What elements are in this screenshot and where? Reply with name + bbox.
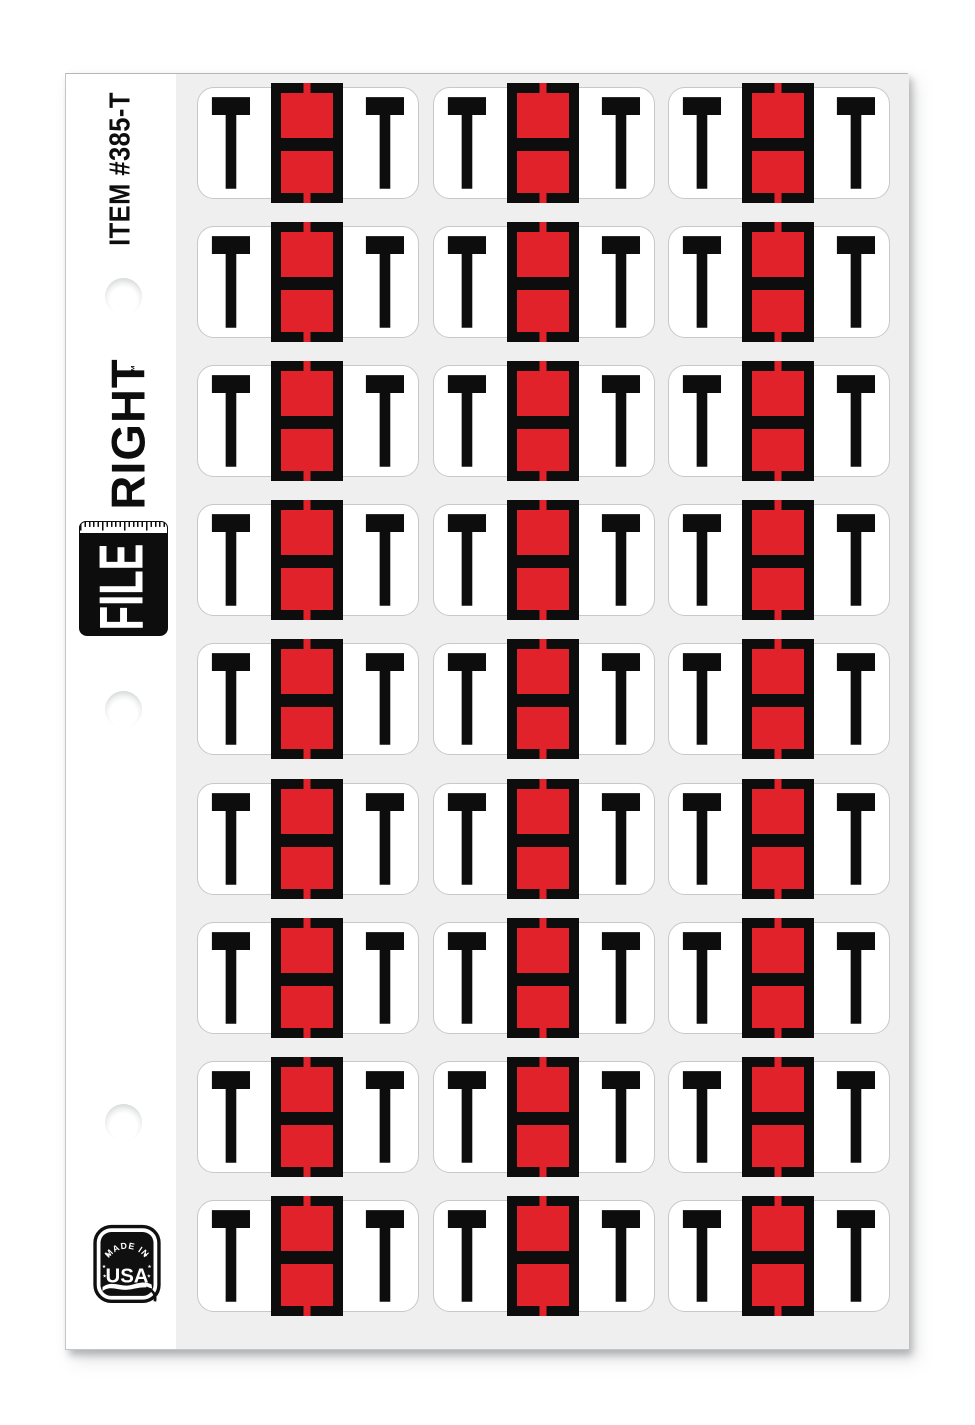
fold-notch-bottom: [304, 748, 311, 759]
label-sticker: TT: [197, 226, 419, 338]
color-block-top: [517, 1206, 569, 1251]
label-sticker: TT: [668, 1061, 890, 1173]
label-sticker: TT: [668, 922, 890, 1034]
color-block-bottom: [281, 986, 333, 1028]
label-letter-right: T: [601, 1047, 640, 1194]
label-letter-right: T: [601, 351, 640, 498]
fold-notch-bottom: [304, 1166, 311, 1177]
fold-notch-top: [539, 83, 546, 94]
fold-notch-top: [775, 779, 782, 790]
label-letter-left: T: [683, 351, 722, 498]
label-letter-left: T: [447, 1047, 486, 1194]
label-letter-right: T: [366, 768, 405, 915]
label-sticker: TT: [668, 87, 890, 199]
label-letter-right: T: [601, 768, 640, 915]
fold-notch-bottom: [539, 331, 546, 342]
fold-notch-bottom: [304, 1305, 311, 1316]
item-number-text: ITEM #385-T: [105, 92, 138, 246]
label-letter-left: T: [683, 73, 722, 220]
label-letter-right: T: [601, 629, 640, 776]
color-block-bottom: [517, 707, 569, 749]
label-letter-right: T: [366, 490, 405, 637]
color-block-top: [517, 1067, 569, 1112]
label-artwork: TT: [433, 365, 655, 477]
label-letter-left: T: [447, 768, 486, 915]
label-sticker: TT: [433, 226, 655, 338]
label-artwork: TT: [433, 504, 655, 616]
label-letter-right: T: [837, 1047, 876, 1194]
fold-notch-bottom: [304, 470, 311, 481]
product-image: { "sheet": { "item_number": "ITEM #385-T…: [0, 0, 975, 1425]
color-block-bottom: [752, 847, 804, 889]
color-block-top: [517, 93, 569, 138]
label-sticker: TT: [433, 87, 655, 199]
color-block-bottom: [517, 568, 569, 610]
fold-notch-bottom: [304, 1027, 311, 1038]
fold-notch-top: [775, 361, 782, 372]
fold-notch-bottom: [775, 1166, 782, 1177]
fold-notch-bottom: [539, 1166, 546, 1177]
color-block-top: [752, 232, 804, 277]
color-block-top: [281, 371, 333, 416]
label-letter-right: T: [601, 212, 640, 359]
fold-notch-top: [539, 918, 546, 929]
fold-notch-top: [304, 83, 311, 94]
label-letter-left: T: [683, 490, 722, 637]
label-letter-left: T: [447, 73, 486, 220]
label-artwork: TT: [668, 643, 890, 755]
label-sticker: TT: [197, 504, 419, 616]
fold-notch-top: [304, 918, 311, 929]
color-block-bottom: [281, 707, 333, 749]
label-sticker: TT: [433, 1200, 655, 1312]
label-letter-right: T: [366, 351, 405, 498]
color-block-bottom: [281, 568, 333, 610]
color-block-bottom: [281, 290, 333, 332]
label-sticker: TT: [433, 365, 655, 477]
label-sticker: TT: [668, 783, 890, 895]
color-block-top: [752, 1067, 804, 1112]
label-sticker: TT: [197, 365, 419, 477]
color-block-top: [281, 928, 333, 973]
label-sticker: TT: [197, 643, 419, 755]
color-block-top: [281, 789, 333, 834]
label-artwork: TT: [197, 504, 419, 616]
label-artwork: TT: [197, 226, 419, 338]
fold-notch-bottom: [775, 1027, 782, 1038]
label-letter-right: T: [366, 212, 405, 359]
color-block-bottom: [752, 290, 804, 332]
label-letter-left: T: [212, 629, 251, 776]
label-letter-left: T: [212, 1047, 251, 1194]
fold-notch-top: [304, 222, 311, 233]
label-sticker: TT: [197, 1061, 419, 1173]
label-letter-left: T: [447, 490, 486, 637]
color-block-top: [752, 510, 804, 555]
label-sticker: TT: [433, 1061, 655, 1173]
fold-notch-top: [775, 500, 782, 511]
color-block-top: [752, 649, 804, 694]
color-block-bottom: [517, 847, 569, 889]
fold-notch-top: [539, 500, 546, 511]
label-artwork: TT: [433, 643, 655, 755]
label-sticker: TT: [668, 1200, 890, 1312]
label-letter-left: T: [212, 351, 251, 498]
color-block-top: [281, 232, 333, 277]
fold-notch-top: [775, 1057, 782, 1068]
fold-notch-bottom: [775, 888, 782, 899]
color-block-top: [517, 510, 569, 555]
label-letter-right: T: [366, 1047, 405, 1194]
label-artwork: TT: [197, 365, 419, 477]
fold-notch-bottom: [539, 192, 546, 203]
label-letter-right: T: [366, 908, 405, 1055]
label-artwork: TT: [197, 922, 419, 1034]
fold-notch-top: [304, 500, 311, 511]
ruler-icon: [79, 521, 168, 534]
color-block-bottom: [517, 429, 569, 471]
label-letter-right: T: [366, 73, 405, 220]
fold-notch-top: [775, 1196, 782, 1207]
fold-notch-top: [539, 639, 546, 650]
color-block-top: [281, 649, 333, 694]
fold-notch-bottom: [539, 470, 546, 481]
label-artwork: TT: [433, 226, 655, 338]
label-letter-left: T: [447, 1186, 486, 1333]
label-letter-left: T: [683, 1047, 722, 1194]
fold-notch-top: [304, 1057, 311, 1068]
label-artwork: TT: [433, 1200, 655, 1312]
fold-notch-bottom: [775, 748, 782, 759]
trademark-symbol: ™: [130, 365, 142, 376]
label-artwork: TT: [197, 783, 419, 895]
label-letter-right: T: [601, 490, 640, 637]
fold-notch-top: [539, 779, 546, 790]
label-artwork: TT: [197, 1200, 419, 1312]
label-letter-left: T: [683, 1186, 722, 1333]
label-letter-right: T: [837, 1186, 876, 1333]
badge-star: ★: [106, 1252, 111, 1258]
labels-grid: TTTTTTTTTTTTTTTTTTTTTTTTTTTTTTTTTTTTTTTT…: [176, 74, 909, 1349]
label-letter-right: T: [837, 73, 876, 220]
color-block-bottom: [517, 151, 569, 193]
label-artwork: TT: [433, 1061, 655, 1173]
color-block-bottom: [517, 1125, 569, 1167]
fold-notch-top: [775, 222, 782, 233]
fold-notch-top: [539, 1196, 546, 1207]
color-block-bottom: [517, 986, 569, 1028]
label-letter-right: T: [837, 768, 876, 915]
color-block-bottom: [752, 986, 804, 1028]
fold-notch-top: [304, 361, 311, 372]
label-sticker: TT: [668, 226, 890, 338]
label-sticker: TT: [668, 643, 890, 755]
label-sticker: TT: [433, 643, 655, 755]
color-block-top: [752, 371, 804, 416]
color-block-top: [517, 232, 569, 277]
label-sticker: TT: [197, 1200, 419, 1312]
color-block-bottom: [517, 1264, 569, 1306]
fold-notch-bottom: [304, 888, 311, 899]
label-sticker: TT: [433, 922, 655, 1034]
fold-notch-top: [775, 83, 782, 94]
label-artwork: TT: [668, 1200, 890, 1312]
label-artwork: TT: [433, 783, 655, 895]
label-sticker: TT: [668, 504, 890, 616]
fold-notch-bottom: [775, 192, 782, 203]
fold-notch-bottom: [775, 470, 782, 481]
brand-right-text: RIGHT: [101, 358, 156, 509]
color-block-bottom: [281, 429, 333, 471]
label-letter-left: T: [212, 768, 251, 915]
color-block-top: [752, 789, 804, 834]
color-block-top: [281, 510, 333, 555]
color-block-top: [517, 928, 569, 973]
label-letter-left: T: [212, 212, 251, 359]
color-block-top: [752, 928, 804, 973]
punch-hole-top: [105, 278, 142, 315]
label-artwork: TT: [668, 922, 890, 1034]
brand-file-text: FILE: [88, 544, 158, 631]
fold-notch-bottom: [539, 888, 546, 899]
label-artwork: TT: [668, 1061, 890, 1173]
fold-notch-bottom: [775, 331, 782, 342]
color-block-bottom: [752, 1125, 804, 1167]
color-block-top: [281, 93, 333, 138]
label-letter-right: T: [837, 908, 876, 1055]
color-block-bottom: [281, 1125, 333, 1167]
color-block-bottom: [752, 151, 804, 193]
label-sticker: TT: [197, 87, 419, 199]
label-sticker: TT: [197, 783, 419, 895]
label-letter-right: T: [837, 212, 876, 359]
label-letter-left: T: [447, 908, 486, 1055]
label-letter-left: T: [212, 1186, 251, 1333]
binding-strip: ITEM #385-T RIGHT ™ FILE MADE IN ★ ★ ★ ★…: [66, 74, 176, 1349]
label-letter-right: T: [837, 490, 876, 637]
label-artwork: TT: [668, 365, 890, 477]
color-block-bottom: [517, 290, 569, 332]
color-block-top: [752, 1206, 804, 1251]
label-letter-left: T: [447, 629, 486, 776]
fold-notch-bottom: [539, 1027, 546, 1038]
label-sticker: TT: [433, 504, 655, 616]
label-letter-right: T: [601, 73, 640, 220]
label-letter-left: T: [447, 351, 486, 498]
label-artwork: TT: [433, 87, 655, 199]
fold-notch-bottom: [539, 748, 546, 759]
label-sheet: ITEM #385-T RIGHT ™ FILE MADE IN ★ ★ ★ ★…: [65, 73, 908, 1350]
label-letter-right: T: [837, 351, 876, 498]
fold-notch-bottom: [775, 609, 782, 620]
color-block-top: [281, 1067, 333, 1112]
color-block-top: [752, 93, 804, 138]
fold-notch-top: [775, 918, 782, 929]
fold-notch-bottom: [539, 1305, 546, 1316]
color-block-bottom: [752, 429, 804, 471]
label-artwork: TT: [668, 504, 890, 616]
color-block-bottom: [281, 151, 333, 193]
label-letter-left: T: [212, 490, 251, 637]
label-artwork: TT: [668, 87, 890, 199]
brand-file-box: FILE: [79, 521, 168, 636]
color-block-bottom: [281, 1264, 333, 1306]
label-letter-left: T: [683, 212, 722, 359]
fold-notch-bottom: [775, 1305, 782, 1316]
fold-notch-bottom: [304, 192, 311, 203]
label-letter-left: T: [683, 629, 722, 776]
color-block-top: [281, 1206, 333, 1251]
fold-notch-top: [539, 361, 546, 372]
punch-hole-middle: [105, 691, 142, 728]
color-block-top: [517, 789, 569, 834]
fold-notch-top: [304, 639, 311, 650]
fold-notch-top: [775, 639, 782, 650]
fold-notch-bottom: [304, 331, 311, 342]
label-artwork: TT: [668, 783, 890, 895]
color-block-bottom: [752, 1264, 804, 1306]
label-sticker: TT: [433, 783, 655, 895]
label-artwork: TT: [197, 643, 419, 755]
color-block-bottom: [752, 707, 804, 749]
color-block-bottom: [752, 568, 804, 610]
fold-notch-bottom: [304, 609, 311, 620]
label-letter-right: T: [837, 629, 876, 776]
label-letter-left: T: [683, 768, 722, 915]
label-artwork: TT: [433, 922, 655, 1034]
fold-notch-bottom: [539, 609, 546, 620]
badge-star: ★: [143, 1252, 148, 1258]
color-block-top: [517, 649, 569, 694]
label-letter-left: T: [447, 212, 486, 359]
label-letter-right: T: [601, 908, 640, 1055]
fold-notch-top: [304, 779, 311, 790]
fold-notch-top: [304, 1196, 311, 1207]
color-block-top: [517, 371, 569, 416]
punch-hole-bottom: [105, 1104, 142, 1141]
color-block-bottom: [281, 847, 333, 889]
label-letter-left: T: [212, 908, 251, 1055]
label-letter-left: T: [212, 73, 251, 220]
label-letter-right: T: [601, 1186, 640, 1333]
label-artwork: TT: [197, 1061, 419, 1173]
label-letter-right: T: [366, 629, 405, 776]
label-letter-left: T: [683, 908, 722, 1055]
label-artwork: TT: [197, 87, 419, 199]
label-sticker: TT: [668, 365, 890, 477]
made-in-usa-badge: MADE IN ★ ★ ★ ★ ★ ★ USA: [93, 1224, 161, 1308]
label-artwork: TT: [668, 226, 890, 338]
fold-notch-top: [539, 222, 546, 233]
fold-notch-top: [539, 1057, 546, 1068]
label-letter-right: T: [366, 1186, 405, 1333]
label-sticker: TT: [197, 922, 419, 1034]
